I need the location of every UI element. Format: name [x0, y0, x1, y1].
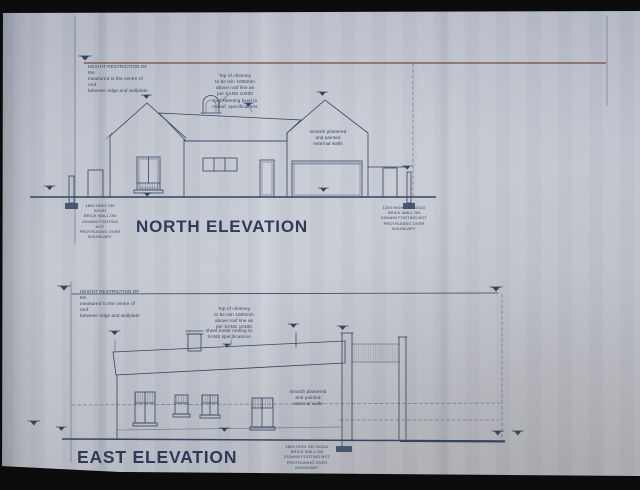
note-chimney-east: Top of chimney to be min 1000mm above ro… — [210, 306, 258, 330]
photo-of-architectural-drawing: HEIGHT RESTRICTION OF 8m measured to the… — [0, 0, 640, 490]
note-right-boundary-wall-north: 1200 HIGH 230 SOLID BRICK WALL ON 230x69… — [379, 205, 429, 231]
east-elevation-title: EAST ELEVATION — [77, 447, 237, 468]
note-external-walls-north: smooth plastered and painted external wa… — [305, 129, 351, 147]
note-height-restriction-east: HEIGHT RESTRICTION OF 8m measured to the… — [80, 289, 142, 318]
north-house-outline — [106, 100, 368, 197]
north-roof-sheeting-band — [159, 113, 301, 141]
ground-line-east-dark — [400, 441, 505, 442]
east-roof-sheeting-band — [113, 341, 345, 375]
note-roof-sheeting-north: roof sheeting fixed to manuf. specificat… — [204, 98, 266, 110]
east-windows — [133, 392, 275, 430]
note-left-boundary-wall-north: 1800 HIGH 230 SOLID BRICK WALL ON 230x69… — [79, 203, 121, 239]
north-right-wing — [368, 167, 415, 209]
note-chimney-north: Top of chimney to be min 1000mm above ro… — [206, 73, 264, 97]
north-strip-window — [203, 158, 237, 171]
east-window-2 — [173, 395, 190, 417]
north-left-window — [134, 157, 163, 193]
east-house-outline — [113, 333, 407, 452]
north-garage-door — [292, 161, 362, 197]
east-window-3 — [200, 395, 220, 418]
note-roof-sheeting-east: sheet metal roofing to SANS specificatio… — [201, 328, 257, 340]
note-external-walls-east: smooth plastered and painted external wa… — [287, 389, 329, 407]
north-door — [260, 160, 274, 197]
east-window-4 — [250, 398, 275, 430]
north-elevation-title: NORTH ELEVATION — [136, 217, 308, 237]
note-height-restriction-north: HEIGHT RESTRICTION OF 8m measured to the… — [88, 64, 150, 93]
drawing-layer: HEIGHT RESTRICTION OF 8m measured to the… — [0, 0, 640, 490]
east-roof-note-leader — [230, 339, 232, 346]
east-window-1 — [133, 392, 157, 426]
note-boundary-wall-east: 1800 HIGH 230 SOLID BRICK WALL ON 230x69… — [282, 444, 332, 470]
